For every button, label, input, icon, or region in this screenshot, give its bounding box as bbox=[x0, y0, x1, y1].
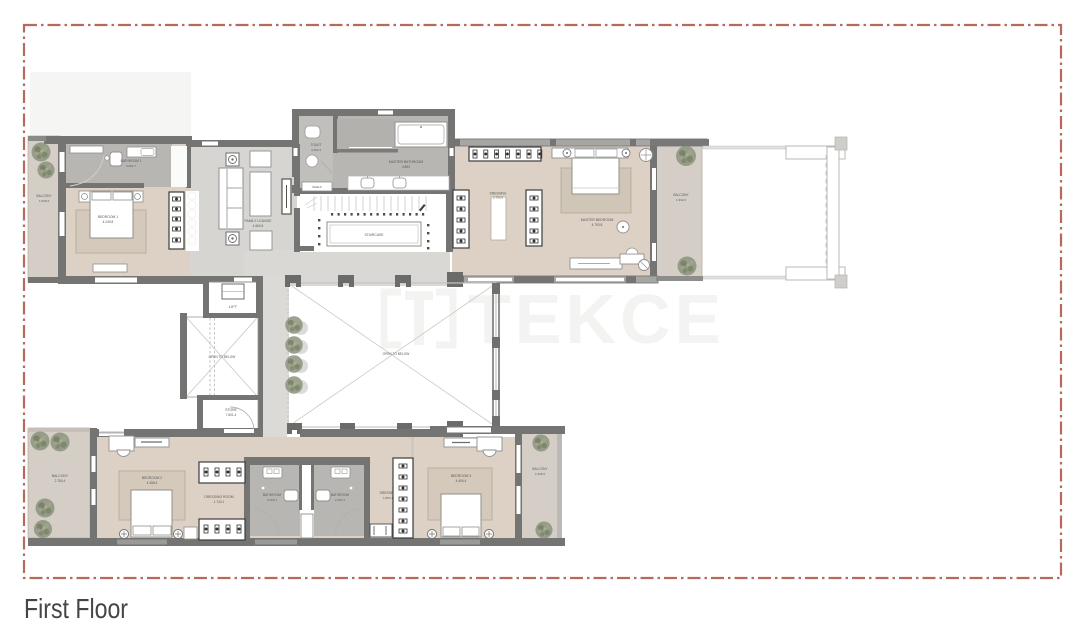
svg-text:SHELF: SHELF bbox=[312, 185, 322, 189]
svg-text:BATHROOM: BATHROOM bbox=[263, 493, 282, 497]
svg-text:2.753.6: 2.753.6 bbox=[493, 196, 503, 200]
svg-text:2.463.1: 2.463.1 bbox=[267, 498, 277, 502]
svg-text:FAMILY LOUNGE: FAMILY LOUNGE bbox=[244, 219, 272, 223]
svg-text:4.492.4: 4.492.4 bbox=[311, 148, 321, 152]
svg-text:BATHROOM: BATHROOM bbox=[331, 493, 350, 497]
svg-text:BEDROOM 2: BEDROOM 2 bbox=[142, 476, 162, 480]
svg-text:1.853.1: 1.853.1 bbox=[383, 496, 393, 500]
svg-text:MASTER BEDROOM: MASTER BEDROOM bbox=[581, 218, 614, 222]
svg-text:1.548.3: 1.548.3 bbox=[39, 199, 49, 203]
svg-text:TOILET: TOILET bbox=[310, 143, 321, 147]
svg-text:BALCONY: BALCONY bbox=[52, 474, 69, 478]
svg-text:4.494.4: 4.494.4 bbox=[456, 479, 467, 483]
svg-text:BALCONY: BALCONY bbox=[532, 467, 548, 471]
svg-text:OPEN TO BELOW: OPEN TO BELOW bbox=[209, 355, 236, 359]
svg-text:BEDROOM 3: BEDROOM 3 bbox=[451, 474, 471, 478]
svg-text:DRESSING ROOM: DRESSING ROOM bbox=[204, 495, 233, 499]
svg-text:1.936.6: 1.936.6 bbox=[535, 472, 545, 476]
svg-text:2.463.1: 2.463.1 bbox=[335, 498, 345, 502]
svg-text:4.664.5: 4.664.5 bbox=[253, 224, 264, 228]
svg-text:4.458.4: 4.458.4 bbox=[147, 481, 158, 485]
svg-text:BATHROOM 1: BATHROOM 1 bbox=[121, 159, 142, 163]
svg-text:LIFT: LIFT bbox=[229, 304, 238, 309]
svg-text:2.784.4: 2.784.4 bbox=[55, 479, 66, 483]
svg-text:1.743.1: 1.743.1 bbox=[214, 500, 225, 504]
svg-text:STAIRCASE: STAIRCASE bbox=[365, 233, 385, 237]
svg-text:4.893: 4.893 bbox=[402, 165, 410, 169]
svg-text:MASTER BATHROOM: MASTER BATHROOM bbox=[389, 160, 424, 164]
svg-text:7.801.4: 7.801.4 bbox=[226, 413, 237, 417]
svg-text:4.249.8: 4.249.8 bbox=[103, 220, 114, 224]
svg-text:BEDROOM 1: BEDROOM 1 bbox=[98, 215, 118, 219]
svg-text:First Floor: First Floor bbox=[24, 593, 128, 624]
svg-text:BALCONY: BALCONY bbox=[36, 194, 52, 198]
svg-text:4.601.7: 4.601.7 bbox=[126, 164, 136, 168]
svg-text:STORE: STORE bbox=[225, 408, 237, 412]
svg-text:BALCONY: BALCONY bbox=[673, 193, 689, 197]
svg-text:4.793.8: 4.793.8 bbox=[592, 223, 603, 227]
svg-text:TEKCE: TEKCE bbox=[468, 280, 725, 358]
svg-text:OPEN TO BELOW: OPEN TO BELOW bbox=[383, 352, 410, 356]
svg-text:1.932.6: 1.932.6 bbox=[676, 198, 686, 202]
